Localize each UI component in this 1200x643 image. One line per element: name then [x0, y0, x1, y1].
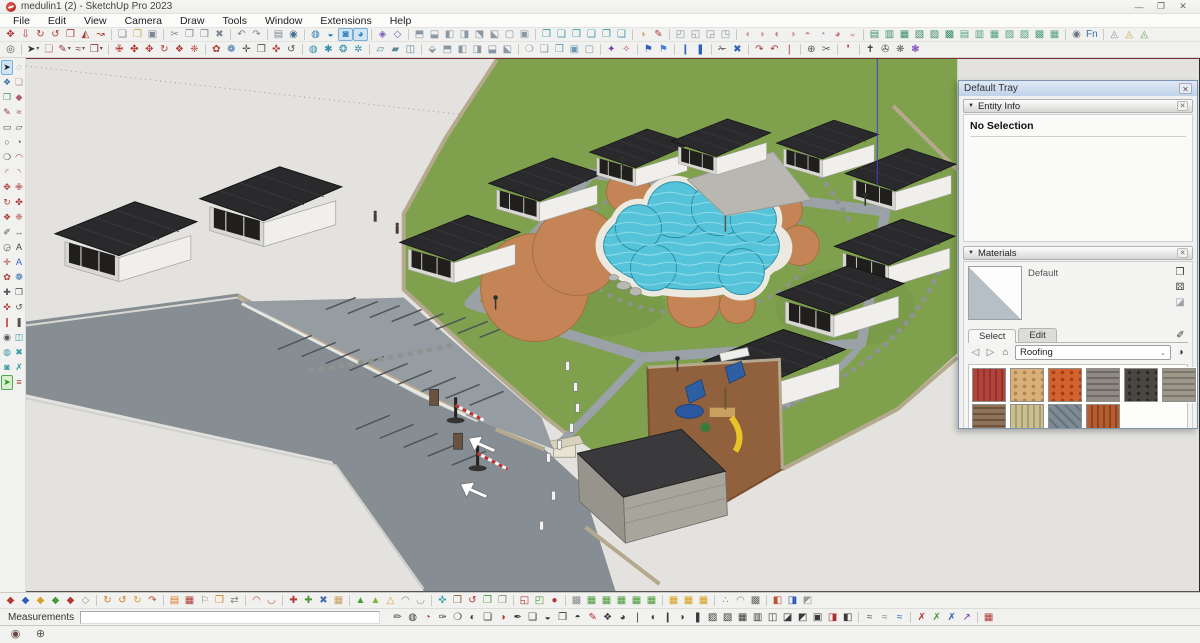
con-red-icon[interactable]: ◆	[3, 594, 18, 607]
view-top-icon[interactable]: ⬒	[440, 43, 455, 56]
paint-bucket-icon[interactable]: ❖	[1, 75, 13, 90]
table-green-e-icon[interactable]: ▦	[644, 594, 659, 607]
table-green-c-icon[interactable]: ▦	[614, 594, 629, 607]
zoom-icon[interactable]: ✚	[1, 285, 13, 300]
materials-close-icon[interactable]: ✕	[1177, 248, 1188, 258]
sketchy-p-icon[interactable]: ❘	[630, 611, 645, 624]
style-pink-icon[interactable]: ◓	[800, 28, 815, 41]
swatch-shake-charcoal[interactable]	[1124, 368, 1158, 402]
arc-icon[interactable]: ◠	[13, 150, 25, 165]
follow-me-icon[interactable]: ✤	[127, 43, 142, 56]
red-table-end-icon[interactable]: ▦	[981, 611, 996, 624]
move-copy-icon[interactable]: ✥	[3, 28, 18, 41]
zoom-window-icon[interactable]: ❐	[13, 285, 25, 300]
sketchy-k-icon[interactable]: ❒	[555, 611, 570, 624]
paste-icon[interactable]: ❒	[197, 28, 212, 41]
new-file-icon[interactable]: ❏	[115, 28, 130, 41]
tape-measure-icon[interactable]: ✐	[1, 225, 13, 240]
menu-camera[interactable]: Camera	[116, 15, 171, 27]
component-g-icon[interactable]: ▢	[502, 28, 517, 41]
sketchy-aa-icon[interactable]: ◩	[795, 611, 810, 624]
section-cut-icon[interactable]: ✖	[13, 345, 25, 360]
close-button[interactable]: ✕	[1172, 1, 1194, 12]
measurements-input[interactable]	[80, 611, 380, 624]
section-fill-icon[interactable]: ▰	[388, 43, 403, 56]
make-component-icon[interactable]: ❒	[1, 90, 13, 105]
box-gray-3d-icon[interactable]: ◩	[800, 594, 815, 607]
sketchy-u-icon[interactable]: ▨	[705, 611, 720, 624]
flag-white-icon[interactable]: ⚐	[197, 594, 212, 607]
collection-dropdown[interactable]: Roofing ⌄	[1015, 345, 1171, 360]
sketchy-w-icon[interactable]: ▦	[735, 611, 750, 624]
zoom-extents-icon[interactable]: ✜	[269, 43, 284, 56]
arc-orange-b-icon[interactable]: ↺	[115, 594, 130, 607]
sketchy-t-icon[interactable]: ❚	[690, 611, 705, 624]
axes-icon[interactable]: ✛	[1, 255, 13, 270]
gem-pink-icon[interactable]: ✧	[619, 43, 634, 56]
fence-e-icon[interactable]: ▨	[927, 28, 942, 41]
rotated-rectangle-icon[interactable]: ▱	[13, 120, 25, 135]
shield-gray-icon[interactable]: ◬	[1107, 28, 1122, 41]
menu-edit[interactable]: Edit	[39, 15, 75, 27]
component-h-icon[interactable]: ▣	[517, 28, 532, 41]
print-icon[interactable]: ▤	[271, 28, 286, 41]
orbit-icon[interactable]: ✿	[1, 270, 13, 285]
menu-draw[interactable]: Draw	[171, 15, 214, 27]
deck-f-icon[interactable]: ▩	[1032, 28, 1047, 41]
paint-hammer-icon[interactable]: ✝	[863, 43, 878, 56]
sketchy-b-icon[interactable]: ◔	[420, 611, 435, 624]
forward-arrow-icon-icon[interactable]: ▷	[983, 346, 998, 359]
axis-free-icon[interactable]: ↗	[959, 611, 974, 624]
tray-close-icon[interactable]: ✕	[1179, 83, 1192, 94]
line-icon[interactable]: ✎	[1, 105, 13, 120]
deck-d-icon[interactable]: ▧	[1002, 28, 1017, 41]
runner-icon[interactable]: ❜	[841, 43, 856, 56]
shadow-time-icon[interactable]: ◑	[785, 28, 800, 41]
swatch-shingle-asphalt-gray[interactable]	[1086, 368, 1120, 402]
view-iso-icon[interactable]: ⬙	[425, 43, 440, 56]
section-display-icon[interactable]: ◫	[403, 43, 418, 56]
paste-in-place-icon[interactable]: ❒	[569, 28, 584, 41]
table-red-icon[interactable]: ▦	[182, 594, 197, 607]
camera-capture-icon[interactable]: ◉	[1069, 28, 1084, 41]
grid-yellow-c-icon[interactable]: ▦	[696, 594, 711, 607]
con-red2-icon[interactable]: ◆	[63, 594, 78, 607]
box-arrow-a-icon[interactable]: ◱	[517, 594, 532, 607]
component-b-icon[interactable]: ⬓	[427, 28, 442, 41]
move-icon[interactable]: ✥	[142, 43, 157, 56]
offset-icon[interactable]: ❈	[187, 43, 202, 56]
section-plane-icon[interactable]: ▱	[373, 43, 388, 56]
shield-tan-icon[interactable]: ◬	[1122, 28, 1137, 41]
arc-red-b-icon[interactable]: ↶	[767, 43, 782, 56]
warning-fix-icon[interactable]: ◭	[78, 28, 93, 41]
sketchy-c-icon[interactable]: ✑	[435, 611, 450, 624]
post-red-icon[interactable]: ❘	[782, 43, 797, 56]
zoom-extents-icon[interactable]: ✜	[1, 300, 13, 315]
sketchy-q-icon[interactable]: ◖	[645, 611, 660, 624]
x-blue-icon[interactable]: ✖	[730, 43, 745, 56]
two-point-arc-icon[interactable]: ◜	[1, 165, 13, 180]
grid-dot-icon[interactable]: ▩	[569, 594, 584, 607]
sample-swatch-icon-icon[interactable]: ◪	[1173, 296, 1187, 309]
scale-icon[interactable]: ❖	[172, 43, 187, 56]
view-left-icon[interactable]: ⬕	[500, 43, 515, 56]
style-wireframe-icon[interactable]: ❍	[522, 43, 537, 56]
undo-red-icon[interactable]: ↺	[465, 594, 480, 607]
material-preview-swatch[interactable]	[968, 266, 1022, 320]
minimize-button[interactable]: —	[1128, 2, 1150, 12]
axis-y-icon[interactable]: ✗	[929, 611, 944, 624]
undo-icon[interactable]: ↶	[234, 28, 249, 41]
table-green-b-icon[interactable]: ▦	[599, 594, 614, 607]
eraser-icon[interactable]: ❏	[13, 75, 25, 90]
swatch-shingle-wood-gray[interactable]	[1162, 368, 1196, 402]
add-location-icon[interactable]: ◍	[308, 28, 323, 41]
photo-texture-icon[interactable]: ◙	[338, 28, 353, 41]
box-red-3d-icon[interactable]: ◧	[770, 594, 785, 607]
view-front-icon[interactable]: ◧	[455, 43, 470, 56]
interact-a-icon[interactable]: ◍	[306, 43, 321, 56]
copy-icon[interactable]: ❐	[182, 28, 197, 41]
style-blue-icon[interactable]: ◔	[815, 28, 830, 41]
swatch-tile-terracotta[interactable]	[1086, 404, 1120, 428]
pencil-icon[interactable]: ✎▾	[56, 43, 72, 56]
freehand-icon[interactable]: ≈▾	[73, 43, 88, 56]
swatch-tile-fishscale-orange[interactable]	[1048, 368, 1082, 402]
style-hidden-icon[interactable]: ❑	[537, 43, 552, 56]
section-display-icon[interactable]: ◍	[1, 345, 13, 360]
bucket-brown-icon[interactable]: ❒	[450, 594, 465, 607]
pin-b-icon[interactable]: ❚	[693, 43, 708, 56]
doc-orange-icon[interactable]: ▤	[167, 594, 182, 607]
texture-dice-icon-icon[interactable]: ⚄	[1173, 281, 1187, 294]
walk-icon[interactable]: ❚	[13, 315, 25, 330]
fence-c-icon[interactable]: ▦	[897, 28, 912, 41]
plus-red-icon[interactable]: ✚	[286, 594, 301, 607]
curve-dot-b-icon[interactable]: ◡	[264, 594, 279, 607]
arc-out-a-icon[interactable]: ◠	[398, 594, 413, 607]
con-blue-icon[interactable]: ◆	[18, 594, 33, 607]
tab-select[interactable]: Select	[968, 329, 1016, 343]
sketchy-s-icon[interactable]: ◗	[675, 611, 690, 624]
previous-view-icon[interactable]: ↺	[284, 43, 299, 56]
pan-icon[interactable]: ❁	[13, 270, 25, 285]
eraser-icon[interactable]: ❏	[41, 43, 56, 56]
sketchy-ac-icon[interactable]: ◨	[825, 611, 840, 624]
pie-icon[interactable]: ◔	[13, 135, 25, 150]
tri-green-a-icon[interactable]: ▲	[353, 594, 368, 607]
previous-view-icon[interactable]: ↺	[13, 300, 25, 315]
box-orange-icon[interactable]: ❒	[212, 594, 227, 607]
menu-view[interactable]: View	[75, 15, 116, 27]
stack-a-icon[interactable]: ❏	[584, 28, 599, 41]
rectangle-icon[interactable]: ▭	[1, 120, 13, 135]
lock-d-icon[interactable]: ◳	[718, 28, 733, 41]
profile-blue-icon[interactable]: ≈	[892, 611, 907, 624]
box-blue-3d-icon[interactable]: ◨	[785, 594, 800, 607]
rotate-view-icon[interactable]: ↺	[48, 28, 63, 41]
import-geo-icon[interactable]: ⇩	[18, 28, 33, 41]
back-arrow-icon-icon[interactable]: ◁	[968, 346, 983, 359]
collapse-arrow-icon[interactable]: ▼	[968, 250, 974, 256]
push-pull-icon[interactable]: ✙	[13, 180, 25, 195]
image-a-icon[interactable]: ◕	[830, 28, 845, 41]
open-file-icon[interactable]: ❐	[130, 28, 145, 41]
menu-help[interactable]: Help	[381, 15, 421, 27]
swatch-slate-bluegray[interactable]	[1048, 404, 1082, 428]
pin-a-icon[interactable]: ❙	[678, 43, 693, 56]
sketchy-ab-icon[interactable]: ▣	[810, 611, 825, 624]
curve-red-icon[interactable]: ↷	[145, 594, 160, 607]
lock-c-icon[interactable]: ◲	[703, 28, 718, 41]
copy-all-icon[interactable]: ❑	[554, 28, 569, 41]
plus-green-icon[interactable]: ✚	[301, 594, 316, 607]
copy-selected-icon[interactable]: ❐	[539, 28, 554, 41]
flag-b-icon[interactable]: ⚑	[656, 43, 671, 56]
section-fill-icon[interactable]: ◙	[1, 360, 13, 375]
cut-icon[interactable]: ✂	[167, 28, 182, 41]
con-green-icon[interactable]: ◆	[48, 594, 63, 607]
gem-purple-icon[interactable]: ✦	[604, 43, 619, 56]
zigzag-a-icon[interactable]: ≈	[862, 611, 877, 624]
three-point-arc-icon[interactable]: ◝	[13, 165, 25, 180]
section-plane-icon[interactable]: ◫	[13, 330, 25, 345]
swatch-shake-weathered-brown[interactable]	[972, 404, 1006, 428]
component-e-icon[interactable]: ⬔	[472, 28, 487, 41]
refresh-model-icon[interactable]: ↻	[33, 28, 48, 41]
redo-icon[interactable]: ↷	[249, 28, 264, 41]
zoom-window-icon[interactable]: ❐	[254, 43, 269, 56]
sketchy-e-icon[interactable]: ◐	[465, 611, 480, 624]
view-back-icon[interactable]: ⬓	[485, 43, 500, 56]
save-file-icon[interactable]: ▣	[145, 28, 160, 41]
component-f-icon[interactable]: ⬕	[487, 28, 502, 41]
entity-info-header[interactable]: ▼ Entity Info ✕	[963, 99, 1193, 113]
toggle-terrain-icon[interactable]: ◒	[323, 28, 338, 41]
rotate-icon[interactable]: ↻	[1, 195, 13, 210]
compass-icon[interactable]: ⊕	[804, 43, 819, 56]
box-green-icon[interactable]: ❐	[480, 594, 495, 607]
menu-file[interactable]: File	[4, 15, 39, 27]
cross-teal-icon[interactable]: ✜	[435, 594, 450, 607]
interact-b-icon[interactable]: ✱	[321, 43, 336, 56]
sketchy-pencil-icon[interactable]: ✏	[390, 611, 405, 624]
scissors-icon[interactable]: ✂	[819, 43, 834, 56]
stack-b-icon[interactable]: ❐	[599, 28, 614, 41]
grid-yellow-a-icon[interactable]: ▦	[666, 594, 681, 607]
look-around-icon[interactable]: ◉	[1, 330, 13, 345]
model-info-icon[interactable]: ◉	[286, 28, 301, 41]
axis-z-icon[interactable]: ✗	[944, 611, 959, 624]
zoom-lens-icon[interactable]: ◎	[3, 43, 18, 56]
sketchy-a-icon[interactable]: ◍	[405, 611, 420, 624]
orbit-icon[interactable]: ✿	[209, 43, 224, 56]
style-textured-icon[interactable]: ▣	[567, 43, 582, 56]
grid-icon-icon[interactable]: ▩	[748, 594, 763, 607]
zoom-in-icon[interactable]: ✛	[239, 43, 254, 56]
deck-g-icon[interactable]: ▦	[1047, 28, 1062, 41]
dimension-icon[interactable]: ↔	[13, 225, 25, 240]
interact-d-icon[interactable]: ✲	[351, 43, 366, 56]
style-monochrome-icon[interactable]: ▢	[582, 43, 597, 56]
sketchy-h-icon[interactable]: ✒	[510, 611, 525, 624]
geolocation-icon-icon[interactable]: ◉	[8, 628, 23, 641]
sketchy-o-icon[interactable]: ◕	[615, 611, 630, 624]
table-green-d-icon[interactable]: ▦	[629, 594, 644, 607]
restore-button[interactable]: ❐	[1150, 1, 1172, 12]
shadow-toggle-icon[interactable]: ◐	[770, 28, 785, 41]
style-shaded-icon[interactable]: ❒	[552, 43, 567, 56]
deck-e-icon[interactable]: ▨	[1017, 28, 1032, 41]
interact-c-icon[interactable]: ❂	[336, 43, 351, 56]
image-b-icon[interactable]: ◒	[845, 28, 860, 41]
copy-gray-icon[interactable]: ❐	[495, 594, 510, 607]
component-c-icon[interactable]: ◧	[442, 28, 457, 41]
rotate-icon[interactable]: ↻	[157, 43, 172, 56]
window-fit-icon[interactable]: ❒	[63, 28, 78, 41]
sketchy-n-icon[interactable]: ❖	[600, 611, 615, 624]
push-pull-icon[interactable]: ✙	[112, 43, 127, 56]
text-icon[interactable]: A	[13, 240, 25, 255]
sketchy-j-icon[interactable]: ◒	[540, 611, 555, 624]
dots-tri-icon[interactable]: ∴	[718, 594, 733, 607]
flag-a-icon[interactable]: ⚑	[641, 43, 656, 56]
details-pane-icon-icon[interactable]: ◑	[1173, 346, 1188, 359]
3d-text-icon[interactable]: A	[13, 255, 25, 270]
fence-b-icon[interactable]: ▥	[882, 28, 897, 41]
con-yellow-icon[interactable]: ◆	[33, 594, 48, 607]
axis-x-icon[interactable]: ✗	[914, 611, 929, 624]
sketchy-m-icon[interactable]: ✎	[585, 611, 600, 624]
sketchy-z-icon[interactable]: ◪	[780, 611, 795, 624]
arc-orange-c-icon[interactable]: ↻	[130, 594, 145, 607]
box-arrow-b-icon[interactable]: ◰	[532, 594, 547, 607]
tab-edit[interactable]: Edit	[1018, 328, 1056, 342]
sketchy-l-icon[interactable]: ◓	[570, 611, 585, 624]
send-flip-icon[interactable]: ↝	[93, 28, 108, 41]
tri-yellow-icon[interactable]: △	[383, 594, 398, 607]
sketchy-i-icon[interactable]: ❑	[525, 611, 540, 624]
collapse-arrow-icon[interactable]: ▼	[968, 103, 974, 109]
tri-green-b-icon[interactable]: ▲	[368, 594, 383, 607]
credits-icon-icon[interactable]: ⊕	[33, 628, 48, 641]
position-camera-icon[interactable]: ❙	[1, 315, 13, 330]
circle-icon[interactable]: ○	[1, 135, 13, 150]
lasso-icon[interactable]: ◌	[13, 60, 25, 75]
grid-yellow-b-icon[interactable]: ▦	[681, 594, 696, 607]
component-d-icon[interactable]: ◨	[457, 28, 472, 41]
swatch-metal-roofing-red[interactable]	[972, 368, 1006, 402]
sketchy-ad-icon[interactable]: ◧	[840, 611, 855, 624]
protractor-icon[interactable]: ◶	[1, 240, 13, 255]
sandbox-export-icon[interactable]: ➤	[1, 375, 13, 390]
sand-dune-icon[interactable]: ◗	[636, 28, 651, 41]
film-camera-icon[interactable]: ✇	[878, 43, 893, 56]
menu-window[interactable]: Window	[256, 15, 311, 27]
swatch-thatch-beige[interactable]	[1010, 404, 1044, 428]
section-x-icon[interactable]: ✗	[13, 360, 25, 375]
menu-extensions[interactable]: Extensions	[311, 15, 380, 27]
layers-list-icon[interactable]: ≡	[13, 375, 25, 390]
delete-icon[interactable]: ✖	[212, 28, 227, 41]
sketchy-g-icon[interactable]: ◑	[495, 611, 510, 624]
lock-a-icon[interactable]: ◰	[673, 28, 688, 41]
deck-c-icon[interactable]: ▦	[987, 28, 1002, 41]
viewport-canvas[interactable]: Default Tray ✕ ▼ Entity Info ✕ No Select…	[26, 58, 1200, 592]
component-a-icon[interactable]: ⬒	[412, 28, 427, 41]
con-white-icon[interactable]: ◇	[78, 594, 93, 607]
deck-a-icon[interactable]: ▤	[957, 28, 972, 41]
lock-b-icon[interactable]: ◱	[688, 28, 703, 41]
view-right-icon[interactable]: ◨	[470, 43, 485, 56]
grid-tan-icon[interactable]: ▦	[331, 594, 346, 607]
deck-b-icon[interactable]: ▥	[972, 28, 987, 41]
scale-icon[interactable]: ❖	[1, 210, 13, 225]
select-icon[interactable]: ➤	[1, 60, 13, 75]
sketchy-v-icon[interactable]: ▧	[720, 611, 735, 624]
soften-edges-icon[interactable]: ◗	[755, 28, 770, 41]
fence-d-icon[interactable]: ▧	[912, 28, 927, 41]
x-multi-icon[interactable]: ✖	[316, 594, 331, 607]
fence-a-icon[interactable]: ▤	[867, 28, 882, 41]
preview-geo-icon[interactable]: ◕	[353, 28, 368, 41]
arc-out-b-icon[interactable]: ◡	[413, 594, 428, 607]
fog-icon[interactable]: ◖	[740, 28, 755, 41]
table-green-a-icon[interactable]: ▦	[584, 594, 599, 607]
arrows-lr-icon[interactable]: ⇄	[227, 594, 242, 607]
film-reel-icon[interactable]: ❃	[908, 43, 923, 56]
sketchy-f-icon[interactable]: ❏	[480, 611, 495, 624]
new-matched-photo-icon[interactable]: ◇	[390, 28, 405, 41]
sketchy-r-icon[interactable]: ❙	[660, 611, 675, 624]
offset-icon[interactable]: ❈	[13, 210, 25, 225]
sketchy-y-icon[interactable]: ◫	[765, 611, 780, 624]
arc-orange-a-icon[interactable]: ↻	[100, 594, 115, 607]
fence-f-icon[interactable]: ▩	[942, 28, 957, 41]
freehand-icon[interactable]: ≈	[13, 105, 25, 120]
dot-red-icon[interactable]: ●	[547, 594, 562, 607]
select-arrow-icon[interactable]: ➤▾	[25, 43, 41, 56]
polygon-icon[interactable]: ❍	[1, 150, 13, 165]
knife-icon[interactable]: ✁	[715, 43, 730, 56]
arc-thin-icon[interactable]: ◠	[733, 594, 748, 607]
eyedropper-icon[interactable]: ✐	[1173, 329, 1188, 342]
shape-rect-icon[interactable]: ❒▾	[88, 43, 105, 56]
sketchy-d-icon[interactable]: ❍	[450, 611, 465, 624]
entity-info-close-icon[interactable]: ✕	[1177, 101, 1188, 111]
sketchy-x-icon[interactable]: ▥	[750, 611, 765, 624]
menu-tools[interactable]: Tools	[213, 15, 256, 27]
stack-c-icon[interactable]: ❑	[614, 28, 629, 41]
move-icon[interactable]: ✥	[1, 180, 13, 195]
curve-dot-a-icon[interactable]: ◠	[249, 594, 264, 607]
fn-toggle-icon[interactable]: Fn	[1084, 28, 1100, 41]
shapes-icon[interactable]: ◆	[13, 90, 25, 105]
materials-header[interactable]: ▼ Materials ✕	[963, 246, 1193, 260]
arc-red-a-icon[interactable]: ↷	[752, 43, 767, 56]
create-material-icon-icon[interactable]: ❒	[1173, 266, 1187, 279]
gear-icon[interactable]: ❋	[893, 43, 908, 56]
swatch-tile-spanish-tan[interactable]	[1010, 368, 1044, 402]
zigzag-b-icon[interactable]: ≈	[877, 611, 892, 624]
match-photo-icon[interactable]: ◈	[375, 28, 390, 41]
pan-icon[interactable]: ❁	[224, 43, 239, 56]
home-icon-icon[interactable]: ⌂	[998, 346, 1013, 359]
tray-title-bar[interactable]: Default Tray ✕	[959, 81, 1197, 96]
follow-me-icon[interactable]: ✤	[13, 195, 25, 210]
